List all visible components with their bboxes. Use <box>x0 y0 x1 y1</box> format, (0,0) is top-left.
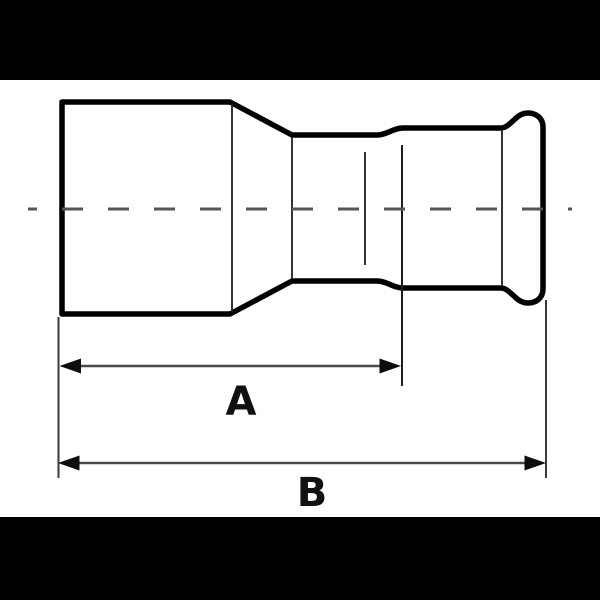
reducer-fitting-diagram: A B <box>0 0 600 600</box>
dimension-a-label: A <box>226 379 257 425</box>
dimension-a-right-arrowhead-icon <box>380 359 402 374</box>
top-letterbox-bar <box>0 0 600 80</box>
bottom-letterbox-bar <box>0 517 600 600</box>
dimension-a-left-arrowhead-icon <box>60 359 82 374</box>
dimension-b-label: B <box>297 470 328 516</box>
dimension-b: B <box>58 456 546 517</box>
dimension-a: A <box>60 359 402 426</box>
drawing-canvas: A B <box>0 0 600 600</box>
dimension-b-right-arrowhead-icon <box>525 456 547 471</box>
dimension-b-left-arrowhead-icon <box>58 456 80 471</box>
